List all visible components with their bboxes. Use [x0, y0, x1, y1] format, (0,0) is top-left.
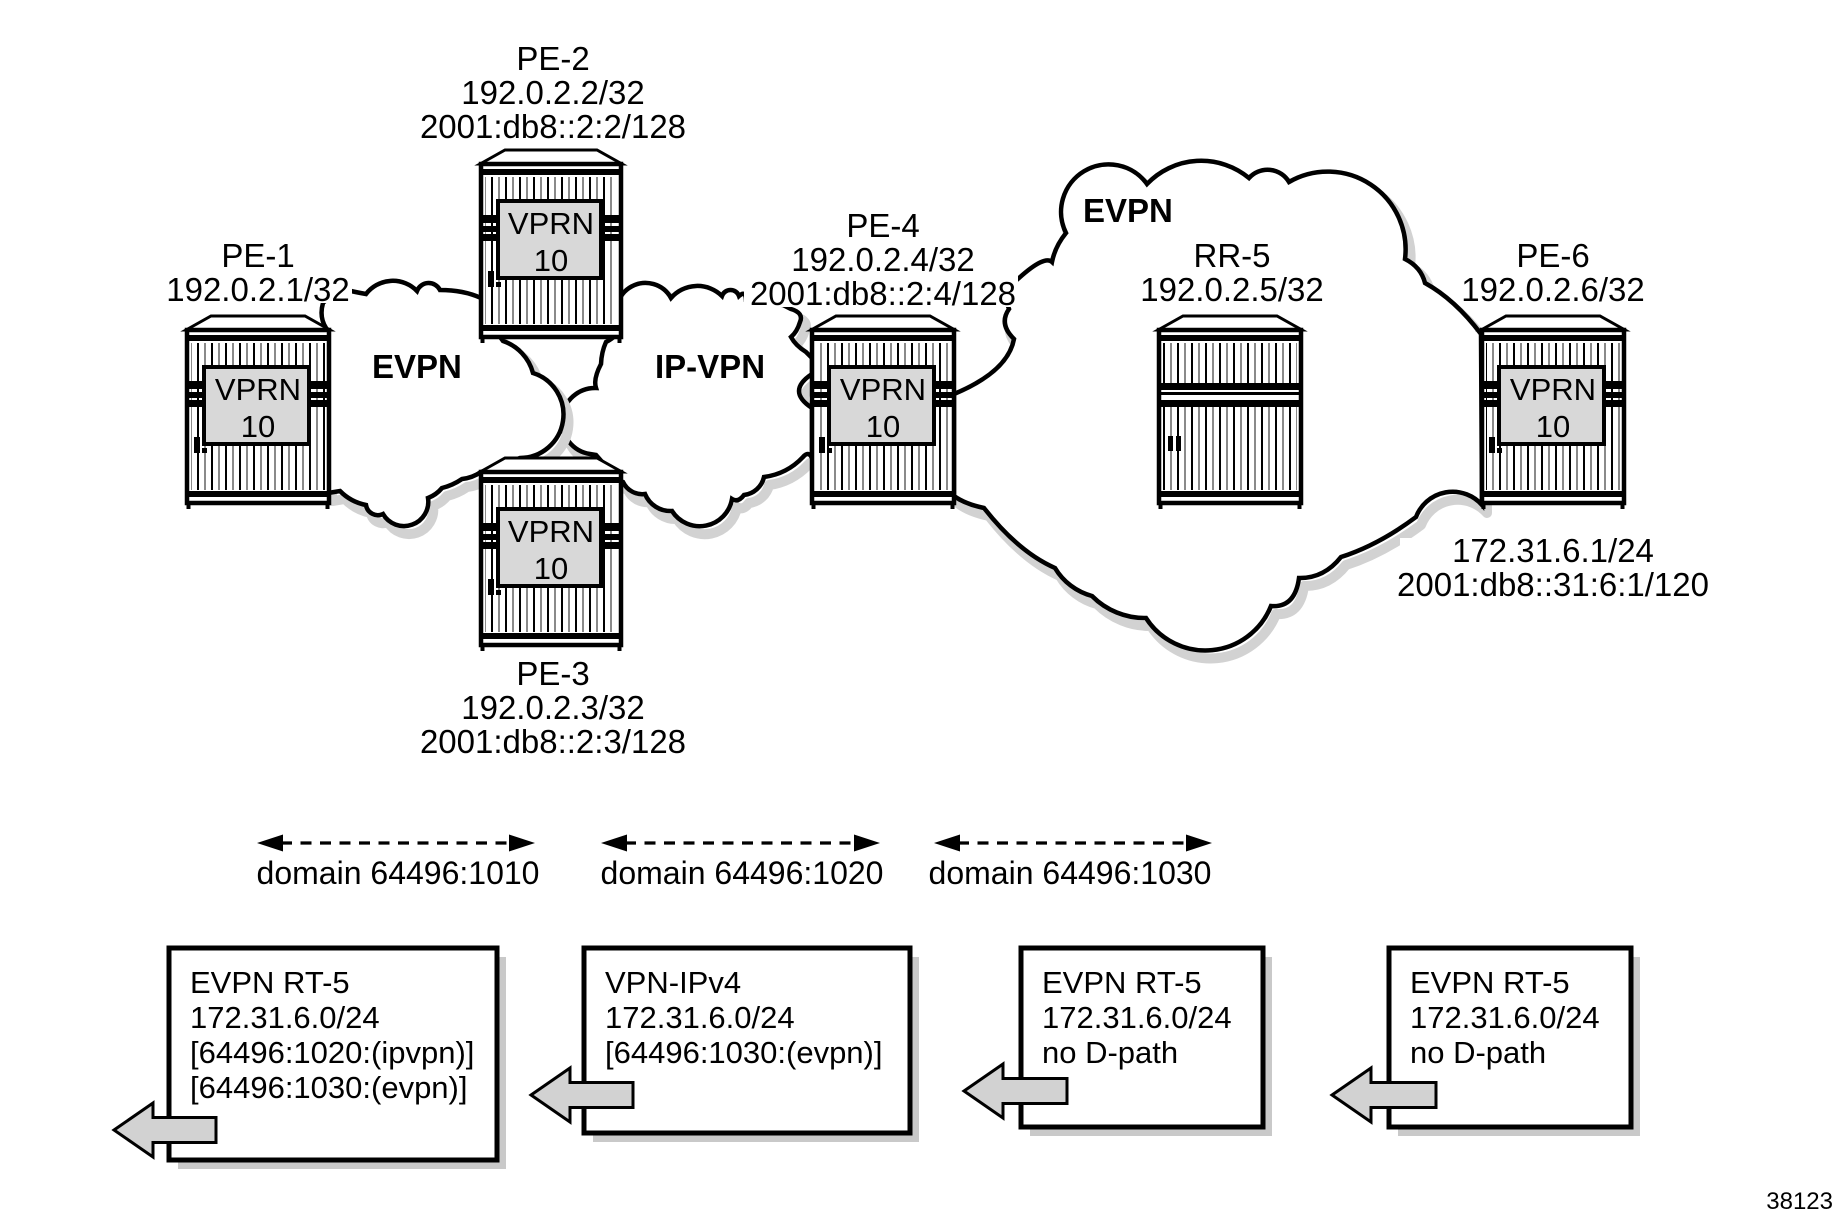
- svg-text:RR-5: RR-5: [1193, 237, 1270, 274]
- svg-text:PE-3: PE-3: [516, 655, 589, 692]
- svg-text:10: 10: [534, 551, 568, 586]
- svg-text:domain 64496:1020: domain 64496:1020: [601, 855, 884, 891]
- svg-text:38123: 38123: [1766, 1188, 1833, 1215]
- svg-text:172.31.6.0/24: 172.31.6.0/24: [190, 1000, 380, 1035]
- svg-text:VPN-IPv4: VPN-IPv4: [605, 965, 741, 1000]
- svg-text:2001:db8::2:2/128: 2001:db8::2:2/128: [420, 108, 686, 145]
- svg-text:10: 10: [866, 409, 900, 444]
- svg-text:domain 64496:1030: domain 64496:1030: [929, 855, 1212, 891]
- svg-text:PE-1: PE-1: [221, 237, 294, 274]
- svg-text:2001:db8::2:3/128: 2001:db8::2:3/128: [420, 723, 686, 760]
- svg-text:PE-4: PE-4: [846, 207, 919, 244]
- svg-text:10: 10: [1536, 409, 1570, 444]
- svg-text:2001:db8::31:6:1/120: 2001:db8::31:6:1/120: [1397, 566, 1709, 603]
- svg-text:EVPN: EVPN: [1083, 192, 1173, 229]
- svg-text:172.31.6.1/24: 172.31.6.1/24: [1452, 532, 1654, 569]
- svg-text:172.31.6.0/24: 172.31.6.0/24: [1042, 1000, 1232, 1035]
- svg-text:domain 64496:1010: domain 64496:1010: [257, 855, 540, 891]
- svg-text:IP-VPN: IP-VPN: [655, 348, 765, 385]
- svg-text:EVPN RT-5: EVPN RT-5: [190, 965, 350, 1000]
- svg-text:VPRN: VPRN: [215, 372, 301, 407]
- svg-text:VPRN: VPRN: [840, 372, 926, 407]
- svg-text:EVPN RT-5: EVPN RT-5: [1410, 965, 1570, 1000]
- svg-text:[64496:1030:(evpn)]: [64496:1030:(evpn)]: [190, 1070, 468, 1105]
- svg-text:VPRN: VPRN: [508, 514, 594, 549]
- svg-text:172.31.6.0/24: 172.31.6.0/24: [605, 1000, 795, 1035]
- svg-text:VPRN: VPRN: [1510, 372, 1596, 407]
- svg-text:192.0.2.3/32: 192.0.2.3/32: [461, 689, 645, 726]
- svg-text:PE-6: PE-6: [1516, 237, 1589, 274]
- svg-text:VPRN: VPRN: [508, 206, 594, 241]
- svg-text:192.0.2.5/32: 192.0.2.5/32: [1140, 271, 1324, 308]
- svg-text:PE-2: PE-2: [516, 40, 589, 77]
- svg-text:192.0.2.1/32: 192.0.2.1/32: [166, 271, 350, 308]
- svg-text:172.31.6.0/24: 172.31.6.0/24: [1410, 1000, 1600, 1035]
- svg-text:[64496:1030:(evpn)]: [64496:1030:(evpn)]: [605, 1035, 883, 1070]
- svg-text:10: 10: [241, 409, 275, 444]
- svg-text:no D-path: no D-path: [1042, 1035, 1178, 1070]
- svg-text:192.0.2.2/32: 192.0.2.2/32: [461, 74, 645, 111]
- svg-text:EVPN: EVPN: [372, 348, 462, 385]
- svg-text:192.0.2.6/32: 192.0.2.6/32: [1461, 271, 1645, 308]
- svg-text:no D-path: no D-path: [1410, 1035, 1546, 1070]
- svg-text:192.0.2.4/32: 192.0.2.4/32: [791, 241, 975, 278]
- svg-text:EVPN RT-5: EVPN RT-5: [1042, 965, 1202, 1000]
- svg-text:2001:db8::2:4/128: 2001:db8::2:4/128: [750, 275, 1016, 312]
- svg-text:10: 10: [534, 243, 568, 278]
- svg-text:[64496:1020:(ipvpn)]: [64496:1020:(ipvpn)]: [190, 1035, 474, 1070]
